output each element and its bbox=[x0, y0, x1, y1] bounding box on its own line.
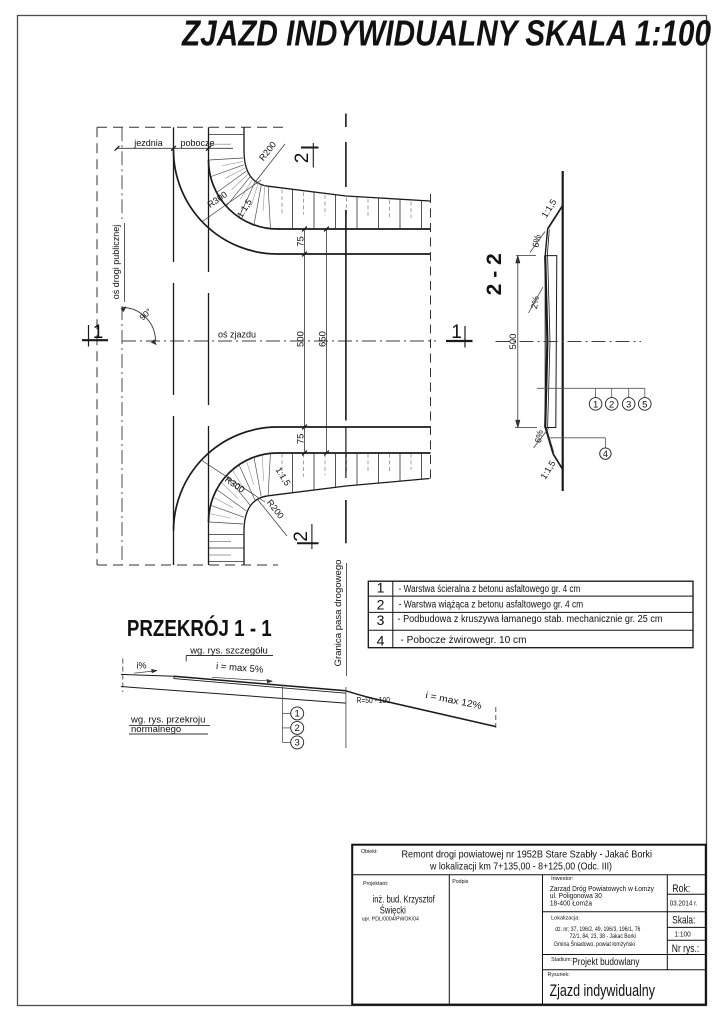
svg-text:1: 1 bbox=[451, 322, 462, 343]
svg-text:Remont drogi powiatowej nr 195: Remont drogi powiatowej nr 1952B Stare S… bbox=[402, 849, 653, 861]
svg-text:1: 1 bbox=[593, 399, 598, 410]
svg-text:2: 2 bbox=[291, 531, 312, 542]
svg-text:upr. PDL/0004/PWOK/04: upr. PDL/0004/PWOK/04 bbox=[362, 916, 419, 922]
svg-text:Projektant:: Projektant: bbox=[363, 881, 388, 887]
svg-text:4: 4 bbox=[377, 632, 385, 648]
svg-text:PRZEKRÓJ 1 - 1: PRZEKRÓJ 1 - 1 bbox=[127, 614, 272, 641]
svg-text:5: 5 bbox=[642, 399, 647, 410]
svg-text:i%: i% bbox=[136, 661, 146, 671]
svg-text:3: 3 bbox=[377, 612, 385, 628]
svg-text:2 - 2: 2 - 2 bbox=[483, 253, 506, 295]
svg-text:1:100: 1:100 bbox=[674, 930, 690, 939]
svg-text:Rysunek:: Rysunek: bbox=[548, 972, 570, 978]
svg-text:- Warstwa ścieralna z betonu a: - Warstwa ścieralna z betonu asfaltowego… bbox=[399, 584, 581, 595]
svg-text:72/1, 84, 23, 38 - Jakać Borki: 72/1, 84, 23, 38 - Jakać Borki bbox=[570, 934, 636, 940]
svg-text:Święcki: Święcki bbox=[380, 905, 406, 917]
svg-text:Zjazd indywidualny: Zjazd indywidualny bbox=[550, 982, 656, 1000]
svg-text:03.2014 r.: 03.2014 r. bbox=[670, 900, 698, 907]
svg-text:1: 1 bbox=[377, 580, 385, 596]
svg-text:75: 75 bbox=[296, 434, 307, 445]
svg-text:oś drogi publicznej: oś drogi publicznej bbox=[111, 225, 121, 300]
svg-text:2: 2 bbox=[292, 153, 313, 164]
svg-text:1: 1 bbox=[295, 709, 300, 720]
svg-text:normalnego: normalnego bbox=[131, 724, 181, 735]
svg-text:ZJAZD INDYWIDUALNY SKALA 1:100: ZJAZD INDYWIDUALNY SKALA 1:100 bbox=[181, 13, 711, 54]
svg-text:18-400 Łomża: 18-400 Łomża bbox=[550, 899, 593, 908]
svg-text:- Podbudowa z kruszywa łamaneg: - Podbudowa z kruszywa łamanego stab. me… bbox=[398, 614, 663, 625]
svg-text:650: 650 bbox=[318, 331, 329, 347]
svg-text:- Pobocze żwirowegr. 10 cm: - Pobocze żwirowegr. 10 cm bbox=[401, 635, 527, 646]
svg-text:Projekt budowlany: Projekt budowlany bbox=[572, 957, 640, 968]
svg-text:500: 500 bbox=[296, 331, 307, 347]
svg-text:Granica pasa drogowego: Granica pasa drogowego bbox=[333, 560, 344, 667]
svg-text:Rok:: Rok: bbox=[672, 883, 690, 895]
svg-text:75: 75 bbox=[296, 236, 307, 247]
svg-text:jezdnia: jezdnia bbox=[133, 138, 163, 148]
svg-text:wg. rys. szczegółu: wg. rys. szczegółu bbox=[189, 646, 268, 657]
svg-text:- Warstwa wiążąca z betonu asf: - Warstwa wiążąca z betonu asfaltowego g… bbox=[399, 600, 584, 611]
svg-text:Nr rys.:: Nr rys.: bbox=[672, 943, 700, 955]
svg-text:dz. nr; 37, 196/2, 49, 196/3,: dz. nr; 37, 196/2, 49, 196/3, 196/1, 76 bbox=[555, 927, 641, 933]
svg-text:R=50 - 100: R=50 - 100 bbox=[357, 696, 391, 705]
svg-text:inż. bud. Krzysztof: inż. bud. Krzysztof bbox=[373, 894, 436, 905]
svg-text:Lokalizacja:: Lokalizacja: bbox=[551, 916, 580, 922]
svg-text:2: 2 bbox=[377, 597, 385, 613]
svg-text:Stadium:: Stadium: bbox=[551, 957, 572, 963]
svg-text:Inwestor:: Inwestor: bbox=[551, 876, 574, 882]
svg-text:oś zjazdu: oś zjazdu bbox=[218, 330, 256, 340]
svg-text:3: 3 bbox=[626, 399, 631, 410]
svg-text:Skala:: Skala: bbox=[672, 914, 695, 926]
svg-text:2: 2 bbox=[295, 723, 300, 734]
svg-text:w lokalizacji km 7+135,00 - 8+: w lokalizacji km 7+135,00 - 8+125,00 (Od… bbox=[429, 860, 612, 872]
svg-text:Gmina Śniadowo, powiat łomżyńs: Gmina Śniadowo, powiat łomżyński bbox=[554, 939, 635, 948]
svg-text:Podpis: Podpis bbox=[452, 879, 469, 885]
svg-text:3: 3 bbox=[295, 738, 300, 749]
svg-text:pobocze: pobocze bbox=[180, 138, 214, 148]
svg-text:4: 4 bbox=[603, 449, 608, 459]
svg-text:1: 1 bbox=[93, 322, 104, 343]
svg-text:2: 2 bbox=[609, 399, 614, 410]
svg-text:Obiekt:: Obiekt: bbox=[361, 849, 378, 855]
